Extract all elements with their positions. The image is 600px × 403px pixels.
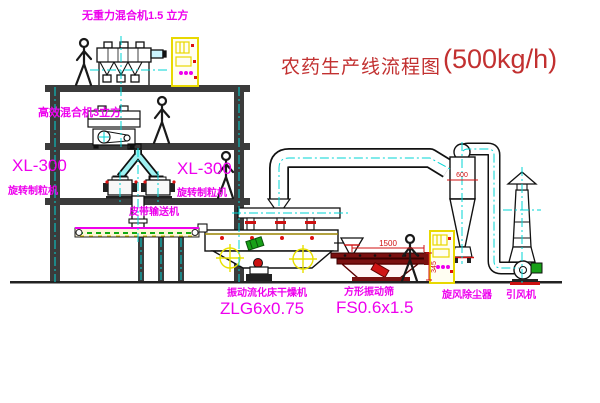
dim-600-text: 600 bbox=[456, 172, 468, 179]
dryer-exhaust-duct bbox=[279, 158, 448, 200]
label-cyclone: 旋风除尘器 bbox=[442, 291, 492, 301]
person-top-floor bbox=[76, 39, 91, 85]
fluid-bed-dryer bbox=[198, 199, 340, 281]
belt-conveyor bbox=[75, 228, 199, 237]
label-granulator-mid: 旋转制粒机 bbox=[177, 189, 227, 199]
label-square-screen: 方形振动筛 bbox=[344, 288, 394, 298]
process-flow-diagram: 1500 345 600 农药生产线流程图 (500kg/h) 无重力混合机1.… bbox=[0, 0, 600, 403]
label-square-screen-model: FS0.6x1.5 bbox=[336, 299, 414, 316]
label-xl300-mid: XL-300 bbox=[177, 160, 232, 177]
control-cabinet-right bbox=[430, 231, 454, 283]
person-second-floor bbox=[154, 97, 169, 143]
gravity-free-mixer bbox=[97, 42, 166, 85]
label-induced-draft-fan: 引风机 bbox=[506, 291, 536, 301]
diagram-title: 农药生产线流程图 (500kg/h) bbox=[281, 44, 557, 79]
title-text: 农药生产线流程图 bbox=[281, 44, 441, 79]
label-fluidbed-model: ZLG6x0.75 bbox=[220, 300, 304, 317]
title-capacity: (500kg/h) bbox=[443, 44, 557, 75]
dim-1500-text: 1500 bbox=[379, 239, 397, 248]
label-fluidbed-dryer: 振动流化床干燥机 bbox=[227, 289, 307, 299]
label-belt-conveyor: 皮带输送机 bbox=[129, 208, 179, 218]
control-cabinet-top bbox=[172, 38, 198, 86]
dim-345-text: 345 bbox=[431, 261, 438, 273]
label-high-efficiency-mixer: 高效混合机3立方 bbox=[38, 108, 121, 119]
label-granulator-left: 旋转制粒机 bbox=[8, 187, 58, 197]
ground-line bbox=[10, 281, 562, 284]
label-xl300-left: XL-300 bbox=[12, 157, 67, 174]
label-gravity-mixer: 无重力混合机1.5 立方 bbox=[82, 11, 188, 22]
